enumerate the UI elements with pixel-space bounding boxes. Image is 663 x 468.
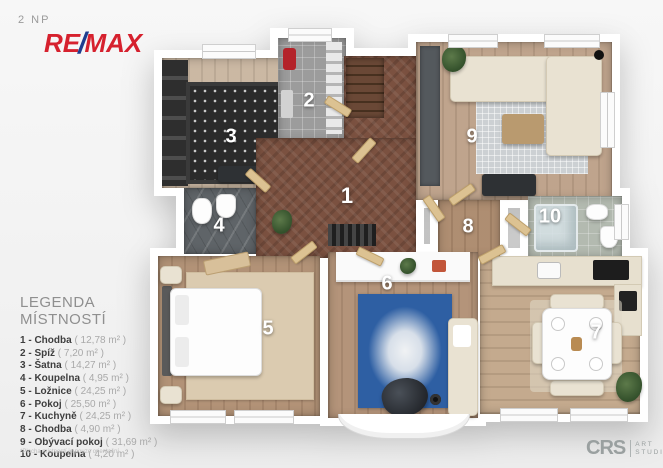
floor-lamp <box>430 394 441 405</box>
red-items <box>283 48 296 70</box>
plate <box>551 357 565 371</box>
remax-slash-icon: / <box>78 27 86 60</box>
legend-item-label: 1 - Chodba <box>20 335 72 346</box>
kitchen-sink <box>537 262 561 279</box>
logo-word-studio: STUDIO <box>635 449 663 457</box>
room-number-4: 4 <box>213 215 224 238</box>
bathroom-sink <box>192 198 212 224</box>
legend-item-area: ( 4,95 m² ) <box>83 373 129 384</box>
centerpiece <box>571 337 582 351</box>
floorplan-page: 2 NP RE/MAX <box>0 0 663 468</box>
window <box>544 34 600 48</box>
window <box>570 408 628 422</box>
floor-lamp <box>594 50 604 60</box>
legend-item-label: 3 - Šatna <box>20 360 62 371</box>
room-number-3: 3 <box>225 126 236 149</box>
legend-item-label: 9 - Obývací pokoj <box>20 437 103 448</box>
pillow <box>175 295 189 325</box>
wardrobe-rack <box>162 60 188 186</box>
logo-word-art: ART <box>635 441 663 449</box>
logo-divider <box>630 440 631 457</box>
nightstand <box>160 266 182 284</box>
remax-max: MAX <box>84 28 142 58</box>
pillow <box>175 337 189 367</box>
legend-item-area: ( 7,20 m² ) <box>58 348 104 359</box>
legend-item: 1 - Chodba ( 12,78 m² ) <box>20 335 170 348</box>
legend-item: 7 - Kuchyně ( 24,25 m² ) <box>20 411 170 424</box>
legend-item: 9 - Obývací pokoj ( 31,69 m² ) <box>20 437 170 450</box>
legend-item: 8 - Chodba ( 4,90 m² ) <box>20 424 170 437</box>
logo-words: ART STUDIO <box>635 441 663 457</box>
room-kuchyne-7 <box>480 256 640 414</box>
legend-item-label: 7 - Kuchyně <box>20 411 77 422</box>
window <box>614 204 629 240</box>
window <box>234 410 294 424</box>
legend-item-area: ( 25,50 m² ) <box>64 399 116 410</box>
hall-plant <box>272 210 292 234</box>
window <box>170 410 226 424</box>
room-number-1: 1 <box>341 183 353 209</box>
room-number-2: 2 <box>303 90 314 113</box>
legend-item-label: 6 - Pokoj <box>20 399 62 410</box>
desk-box <box>432 260 446 272</box>
legend-item-area: ( 14,27 m² ) <box>64 360 116 371</box>
coffee-table <box>502 114 544 144</box>
desk <box>482 174 536 196</box>
legend: LEGENDA MÍSTNOSTÍ 1 - Chodba ( 12,78 m² … <box>20 294 170 462</box>
crs-art-studio-logo: CRS ART STUDIO <box>586 437 663 460</box>
legend-item: 4 - Koupelna ( 4,95 m² ) <box>20 373 170 386</box>
remax-re: RE <box>44 28 80 58</box>
room-number-8: 8 <box>462 216 473 239</box>
doormat <box>328 224 376 246</box>
room-chodba-1-main <box>256 138 416 258</box>
bed <box>170 288 262 376</box>
crs-initials: CRS <box>586 437 625 460</box>
sofa-top-section <box>450 56 558 102</box>
cooktop <box>593 260 629 280</box>
legend-item-label: 8 - Chodba <box>20 424 72 435</box>
legend-item-label: 4 - Koupelna <box>20 373 80 384</box>
room-loznice-5 <box>158 256 320 416</box>
room-number-7: 7 <box>590 322 601 345</box>
room-number-9: 9 <box>466 126 477 149</box>
desk-plant <box>400 258 416 274</box>
legend-item-area: ( 4,90 m² ) <box>74 424 120 435</box>
room-pokoj-6 <box>328 252 478 418</box>
tall-closet <box>420 46 440 186</box>
legend-item-area: ( 12,78 m² ) <box>74 335 126 346</box>
room-number-5: 5 <box>262 318 273 341</box>
legend-item-area: ( 31,69 m² ) <box>106 437 158 448</box>
legend-title: LEGENDA MÍSTNOSTÍ <box>20 294 170 328</box>
kitchen-counter-top <box>492 256 642 286</box>
legend-item: 6 - Pokoj ( 25,50 m² ) <box>20 399 170 412</box>
room-number-6: 6 <box>381 273 392 296</box>
pillow <box>453 325 471 347</box>
daybed <box>448 318 478 416</box>
room-number-10: 10 <box>539 206 561 229</box>
sofa-right-section <box>546 56 602 156</box>
plate <box>551 317 565 331</box>
legend-item: 5 - Ložnice ( 24,25 m² ) <box>20 386 170 399</box>
window <box>500 408 558 422</box>
desk-shelf <box>336 252 470 282</box>
room-obyvaci-pokoj-9 <box>416 42 612 200</box>
legend-footnote: *Plocha místností je pouze orientační <box>20 449 119 455</box>
plate <box>589 357 603 371</box>
bay-window <box>338 414 470 439</box>
appliance <box>281 90 293 118</box>
staircase <box>346 58 384 118</box>
legend-item-area: ( 24,25 m² ) <box>79 411 131 422</box>
legend-item-label: 2 - Spíž <box>20 348 55 359</box>
window <box>448 34 498 48</box>
window <box>202 44 256 59</box>
floor-label: 2 NP <box>18 14 50 26</box>
dining-chair <box>550 380 604 396</box>
legend-item-area: ( 24,25 m² ) <box>74 386 126 397</box>
window <box>600 92 615 148</box>
remax-logo: RE/MAX <box>44 26 142 60</box>
bathroom-sink <box>586 204 608 220</box>
storage-shelves <box>326 42 342 134</box>
floorplan-render: 1 2 3 4 5 6 7 8 9 10 <box>148 28 653 433</box>
kitchen-plant <box>616 372 642 402</box>
legend-item: 3 - Šatna ( 14,27 m² ) <box>20 360 170 373</box>
legend-item: 2 - Spíž ( 7,20 m² ) <box>20 348 170 361</box>
window <box>288 28 332 42</box>
legend-item-label: 5 - Ložnice <box>20 386 72 397</box>
